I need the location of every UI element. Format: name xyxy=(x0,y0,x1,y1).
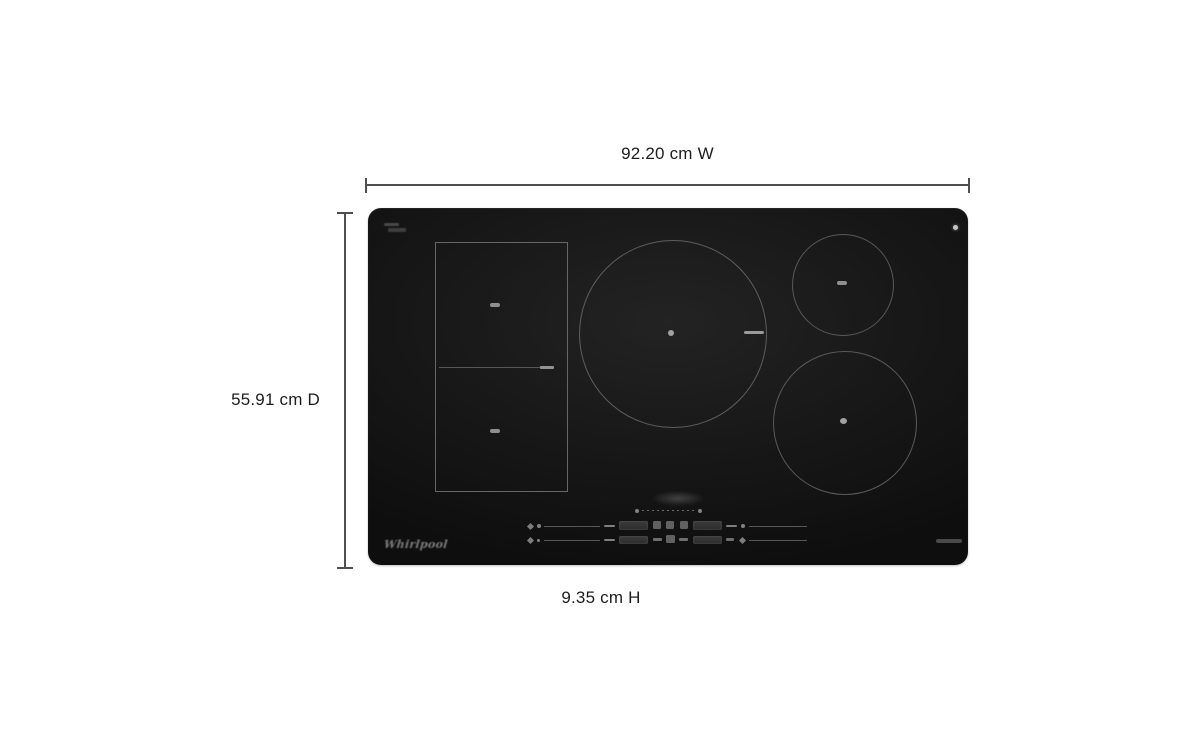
slider1-left-display xyxy=(619,521,648,530)
depth-dimension-tick-bottom xyxy=(337,567,353,569)
flex-lower-center-marker xyxy=(490,429,500,433)
control-key-1 xyxy=(653,521,661,529)
feature-badge-logo xyxy=(382,220,410,236)
slider1-right-track xyxy=(749,526,807,527)
upper-right-burner-marker xyxy=(837,281,847,285)
width-dimension-tick-right xyxy=(968,178,970,193)
slider2-left-track xyxy=(544,540,600,541)
height-dimension-label: 9.35 cm H xyxy=(520,588,682,608)
width-dimension-tick-left xyxy=(365,178,367,193)
flex-zone-divider-line xyxy=(439,367,540,368)
slider2-right-arrow-icon xyxy=(739,537,746,544)
control-dot-left xyxy=(635,509,639,513)
control-key-center xyxy=(666,535,675,543)
control-mark-left xyxy=(653,538,662,541)
control-display-glow xyxy=(651,491,705,506)
slider1-left-track xyxy=(544,526,600,527)
control-key-3 xyxy=(680,521,688,529)
badge-mark xyxy=(388,228,406,232)
slider2-left-display xyxy=(619,536,648,544)
slider1-left-dash xyxy=(604,525,615,527)
flex-zone-divider-dash xyxy=(540,366,554,369)
model-text-mark xyxy=(936,539,962,543)
slider1-left-dot xyxy=(537,524,541,528)
badge-mark xyxy=(384,223,399,226)
slider2-right-dash xyxy=(726,538,734,541)
upper-right-burner-ring xyxy=(792,234,894,336)
slider2-left-dot xyxy=(537,539,540,542)
lower-right-burner-marker xyxy=(840,418,847,424)
depth-dimension-label: 55.91 cm D xyxy=(160,390,320,410)
width-dimension-line xyxy=(366,184,969,186)
flex-upper-center-marker xyxy=(490,303,500,307)
control-dotted-line xyxy=(642,510,696,511)
slider2-right-track xyxy=(749,540,807,541)
slider1-right-dot xyxy=(741,524,745,528)
power-indicator-light xyxy=(953,225,958,230)
induction-cooktop: Whirlpool xyxy=(368,208,968,565)
brand-logo: Whirlpool xyxy=(383,538,448,551)
control-key-2 xyxy=(666,521,674,529)
slider2-right-display xyxy=(693,536,722,544)
width-dimension-label: 92.20 cm W xyxy=(366,144,969,164)
slider1-right-dash xyxy=(726,525,737,527)
slider1-right-display xyxy=(693,521,722,530)
center-burner-side-dash xyxy=(744,331,764,334)
depth-dimension-line xyxy=(344,213,346,569)
center-burner-marker xyxy=(668,330,674,336)
slider2-left-dash xyxy=(604,539,615,541)
depth-dimension-tick-top xyxy=(337,212,353,214)
slider1-left-arrow-icon xyxy=(527,523,534,530)
slider2-left-arrow-icon xyxy=(527,537,534,544)
control-mark-right xyxy=(679,538,688,541)
control-dot-right xyxy=(698,509,702,513)
